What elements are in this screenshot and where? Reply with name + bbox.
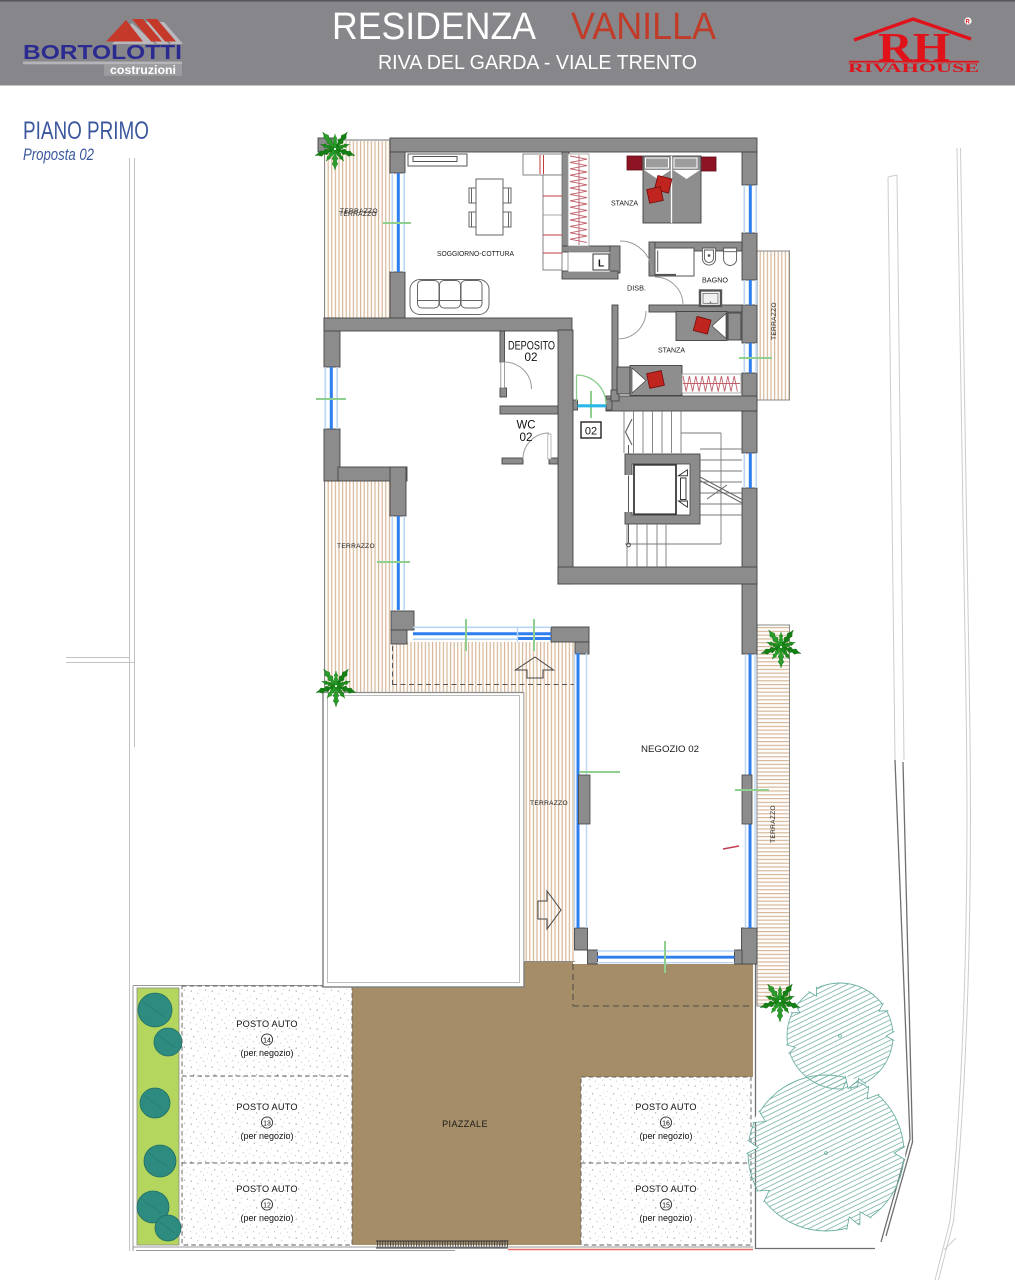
svg-text:(per negozio): (per negozio) xyxy=(639,1131,692,1141)
svg-text:(per negozio): (per negozio) xyxy=(240,1131,293,1141)
svg-text:PIANO PRIMO: PIANO PRIMO xyxy=(23,117,149,145)
svg-text:02: 02 xyxy=(585,426,597,438)
svg-text:POSTO AUTO: POSTO AUTO xyxy=(236,1184,297,1194)
svg-text:02: 02 xyxy=(520,430,533,444)
svg-text:POSTO AUTO: POSTO AUTO xyxy=(635,1184,696,1194)
svg-text:14: 14 xyxy=(263,1038,271,1045)
svg-text:TERRAZZO: TERRAZZO xyxy=(770,805,777,843)
svg-text:Proposta 02: Proposta 02 xyxy=(23,146,94,164)
svg-text:RIVAHOUSE: RIVAHOUSE xyxy=(848,60,979,75)
svg-text:TERRAZZO: TERRAZZO xyxy=(771,302,778,340)
svg-text:R: R xyxy=(966,20,971,26)
svg-text:STANZA: STANZA xyxy=(611,199,638,208)
svg-text:PIAZZALE: PIAZZALE xyxy=(442,1119,488,1129)
svg-text:L: L xyxy=(598,259,604,270)
svg-text:(per negozio): (per negozio) xyxy=(240,1048,293,1058)
svg-text:POSTO AUTO: POSTO AUTO xyxy=(635,1102,696,1112)
svg-text:16: 16 xyxy=(662,1121,670,1128)
svg-text:BORTOLOTTI: BORTOLOTTI xyxy=(23,41,182,64)
svg-text:DISB.: DISB. xyxy=(627,284,646,293)
svg-text:STANZA: STANZA xyxy=(658,346,685,355)
svg-text:(per negozio): (per negozio) xyxy=(240,1213,293,1223)
svg-text:POSTO AUTO: POSTO AUTO xyxy=(236,1102,297,1112)
svg-text:NEGOZIO 02: NEGOZIO 02 xyxy=(641,744,699,754)
svg-text:BAGNO: BAGNO xyxy=(702,276,728,285)
svg-text:(per negozio): (per negozio) xyxy=(639,1213,692,1223)
svg-text:RESIDENZA: RESIDENZA xyxy=(332,6,537,48)
svg-text:02: 02 xyxy=(525,350,538,364)
svg-text:VANILLA: VANILLA xyxy=(571,6,717,48)
svg-text:TERRAZZO: TERRAZZO xyxy=(337,543,375,550)
svg-text:13: 13 xyxy=(263,1121,271,1128)
svg-text:TERRAZZO: TERRAZZO xyxy=(530,800,568,807)
svg-text:12: 12 xyxy=(263,1203,271,1210)
svg-text:RIVA DEL GARDA - VIALE TRENTO: RIVA DEL GARDA - VIALE TRENTO xyxy=(378,52,697,74)
svg-text:SOGGIORNO-COTTURA: SOGGIORNO-COTTURA xyxy=(437,249,514,258)
svg-text:15: 15 xyxy=(662,1203,670,1210)
svg-text:POSTO AUTO: POSTO AUTO xyxy=(236,1019,297,1029)
svg-text:costruzioni: costruzioni xyxy=(110,65,176,77)
svg-text:TERRAZZO: TERRAZZO xyxy=(340,208,378,215)
